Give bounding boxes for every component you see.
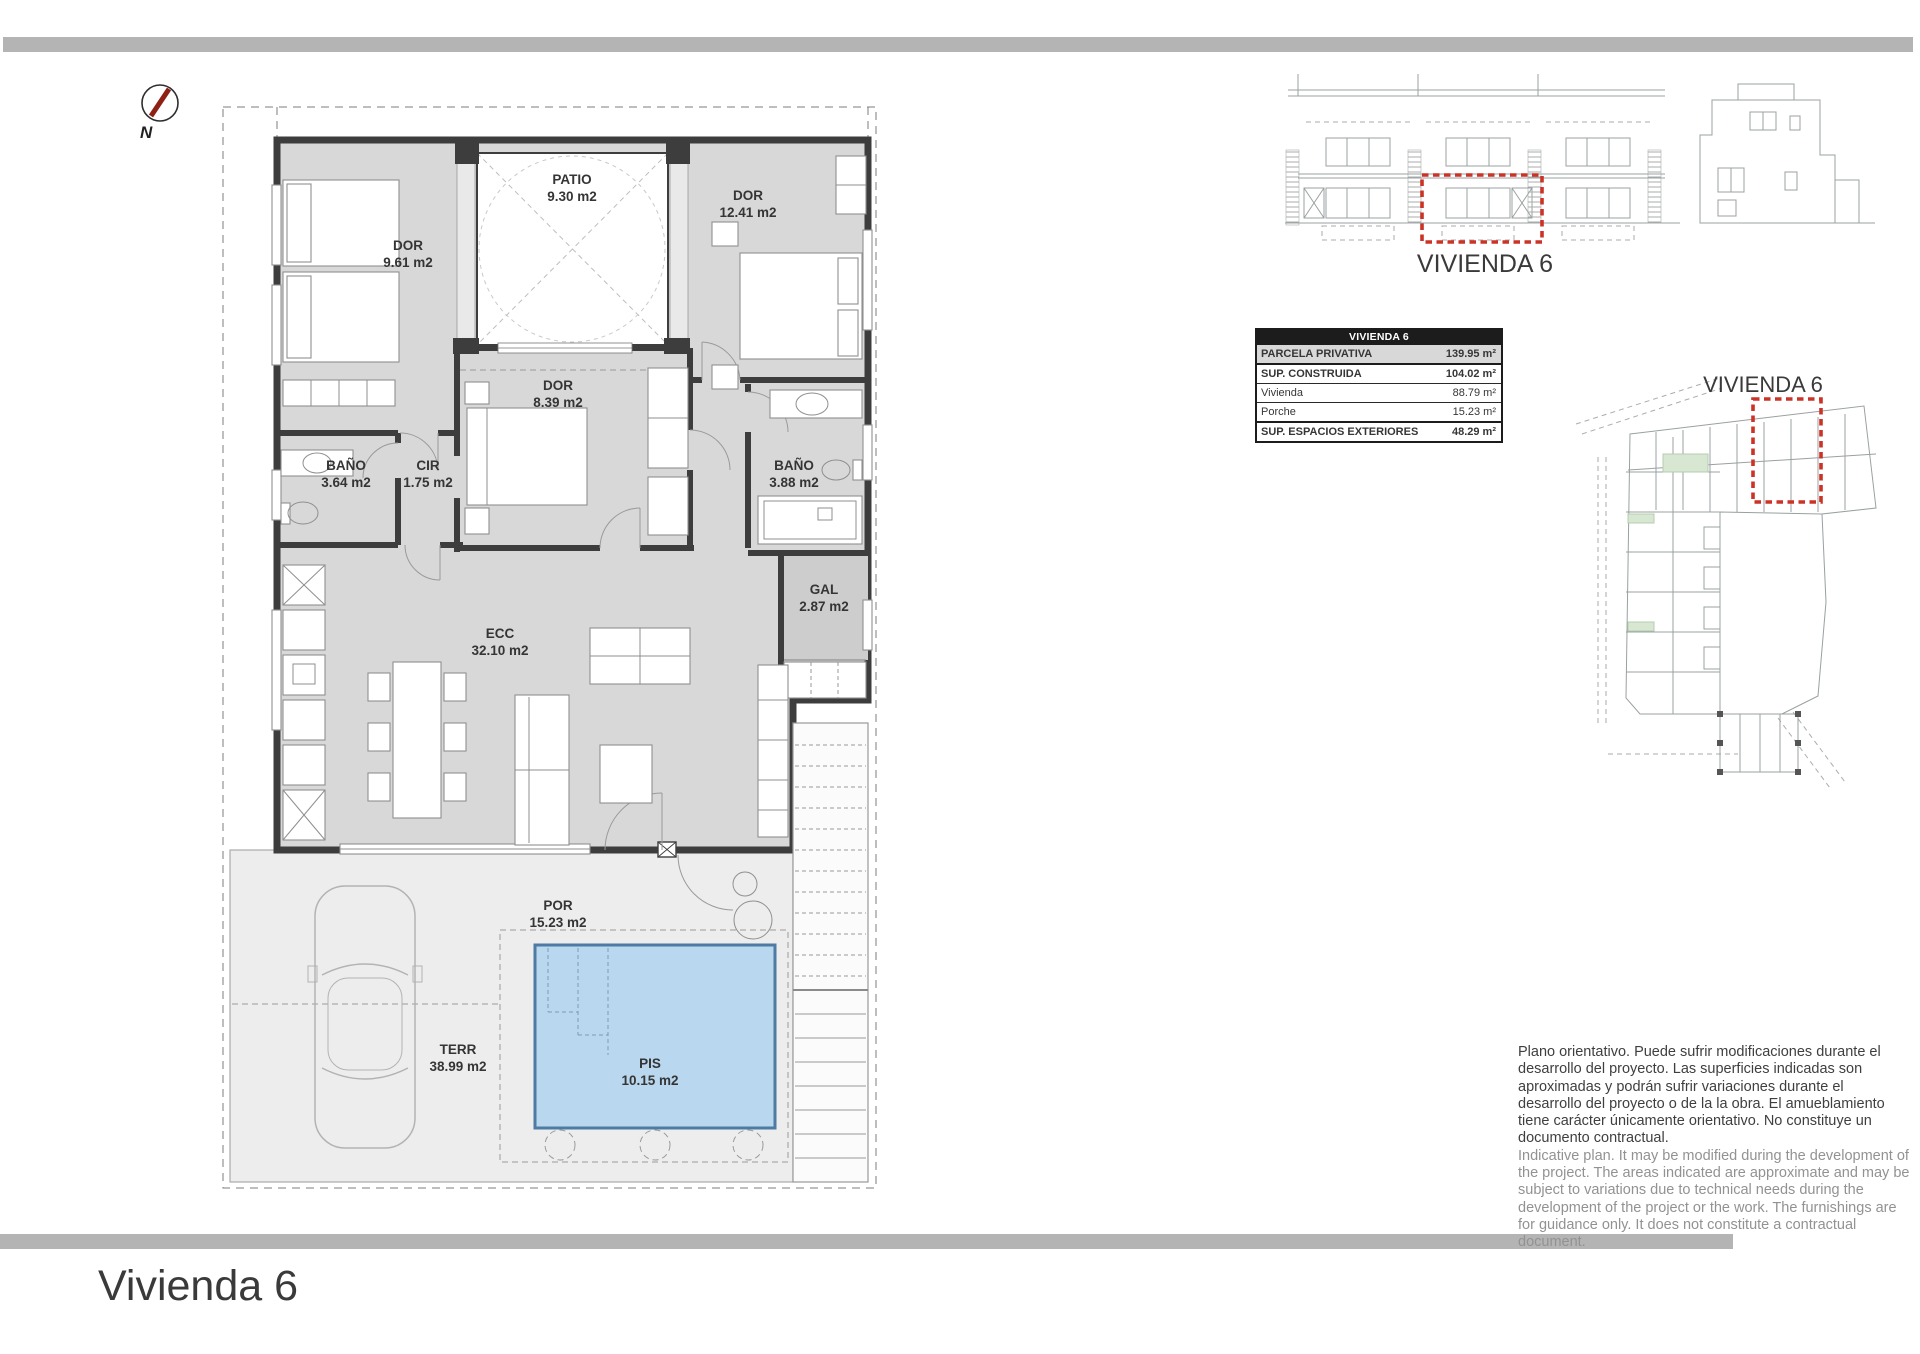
room-label-bano2-name: BAÑO <box>774 458 814 473</box>
room-label-pis-area: 10.15 m2 <box>621 1073 678 1088</box>
site-deck <box>1717 711 1801 775</box>
room-label-terr-name: TERR <box>440 1042 477 1057</box>
row-label: SUP. ESPACIOS EXTERIORES <box>1261 426 1418 438</box>
gallery-appliances <box>784 662 866 698</box>
room-label-dor1-area: 9.61 m2 <box>383 255 433 270</box>
room-label-por-name: POR <box>543 898 573 913</box>
room-label-cir-name: CIR <box>416 458 440 473</box>
row-value: 15.23 m² <box>1453 406 1496 418</box>
row-label: SUP. CONSTRUIDA <box>1261 368 1362 380</box>
room-label-bano1-name: BAÑO <box>326 458 366 473</box>
top-gray-bar <box>3 37 1913 52</box>
north-compass-icon: N <box>126 72 202 150</box>
room-label-patio-area: 9.30 m2 <box>547 189 597 204</box>
room-label-gal-name: GAL <box>810 582 839 597</box>
room-label-bano1-area: 3.64 m2 <box>321 475 371 490</box>
site-building <box>1626 406 1876 714</box>
room-label-terr-area: 38.99 m2 <box>429 1059 486 1074</box>
room-label-gal-area: 2.87 m2 <box>799 599 849 614</box>
room-label-dor2-area: 12.41 m2 <box>719 205 776 220</box>
row-value: 48.29 m² <box>1452 426 1496 438</box>
site-plan-drawing <box>1568 362 1890 796</box>
table-row: SUP. CONSTRUIDA 104.02 m² <box>1257 365 1501 384</box>
room-label-ecc-name: ECC <box>486 626 515 641</box>
table-row: PARCELA PRIVATIVA 139.95 m² <box>1257 345 1501 365</box>
siteplan-caption: VIVIENDA 6 <box>1688 372 1838 398</box>
disclaimer-block: Plano orientativo. Puede sufrir modifica… <box>1518 1044 1910 1252</box>
row-value: 104.02 m² <box>1446 368 1496 380</box>
room-label-dor3-area: 8.39 m2 <box>533 395 583 410</box>
room-label-patio-name: PATIO <box>552 172 591 187</box>
side-stairs <box>793 723 868 1182</box>
pool <box>535 945 775 1128</box>
room-label-por-area: 15.23 m2 <box>529 915 586 930</box>
room-label-dor2-name: DOR <box>733 188 763 203</box>
disclaimer-english: Indicative plan. It may be modified duri… <box>1518 1148 1910 1252</box>
row-value: 88.79 m² <box>1453 387 1496 399</box>
disclaimer-spanish: Plano orientativo. Puede sufrir modifica… <box>1518 1044 1910 1148</box>
room-label-ecc-area: 32.10 m2 <box>471 643 528 658</box>
elevation-drawing <box>1280 60 1895 290</box>
row-label: Porche <box>1261 406 1296 418</box>
row-houses-elevation <box>1285 74 1680 240</box>
unit-highlight-siteplan <box>1753 399 1821 502</box>
room-label-bano2-area: 3.88 m2 <box>769 475 819 490</box>
room-label-pis-name: PIS <box>639 1056 661 1071</box>
table-row: Vivienda 88.79 m² <box>1257 384 1501 403</box>
unit-summary-table: VIVIENDA 6 PARCELA PRIVATIVA 139.95 m² S… <box>1255 328 1503 443</box>
room-label-dor3-name: DOR <box>543 378 573 393</box>
elevation-caption: VIVIENDA 6 <box>1385 250 1585 279</box>
room-label-dor1-name: DOR <box>393 238 423 253</box>
compass-n-label: N <box>140 123 153 142</box>
row-label: Vivienda <box>1261 387 1303 399</box>
table-row: SUP. ESPACIOS EXTERIORES 48.29 m² <box>1257 423 1501 441</box>
row-label: PARCELA PRIVATIVA <box>1261 348 1372 360</box>
unit-highlight-elevation <box>1422 175 1542 242</box>
floor-plan-drawing: PATIO 9.30 m2 DOR 9.61 m2 DOR 12.41 m2 D… <box>200 90 900 1200</box>
page-title: Vivienda 6 <box>98 1262 298 1311</box>
table-header: VIVIENDA 6 <box>1257 330 1501 345</box>
table-row: Porche 15.23 m² <box>1257 403 1501 423</box>
room-label-cir-area: 1.75 m2 <box>403 475 453 490</box>
detached-house-elevation <box>1700 84 1875 223</box>
row-value: 139.95 m² <box>1446 348 1496 360</box>
bottom-gray-bar <box>0 1234 1733 1249</box>
